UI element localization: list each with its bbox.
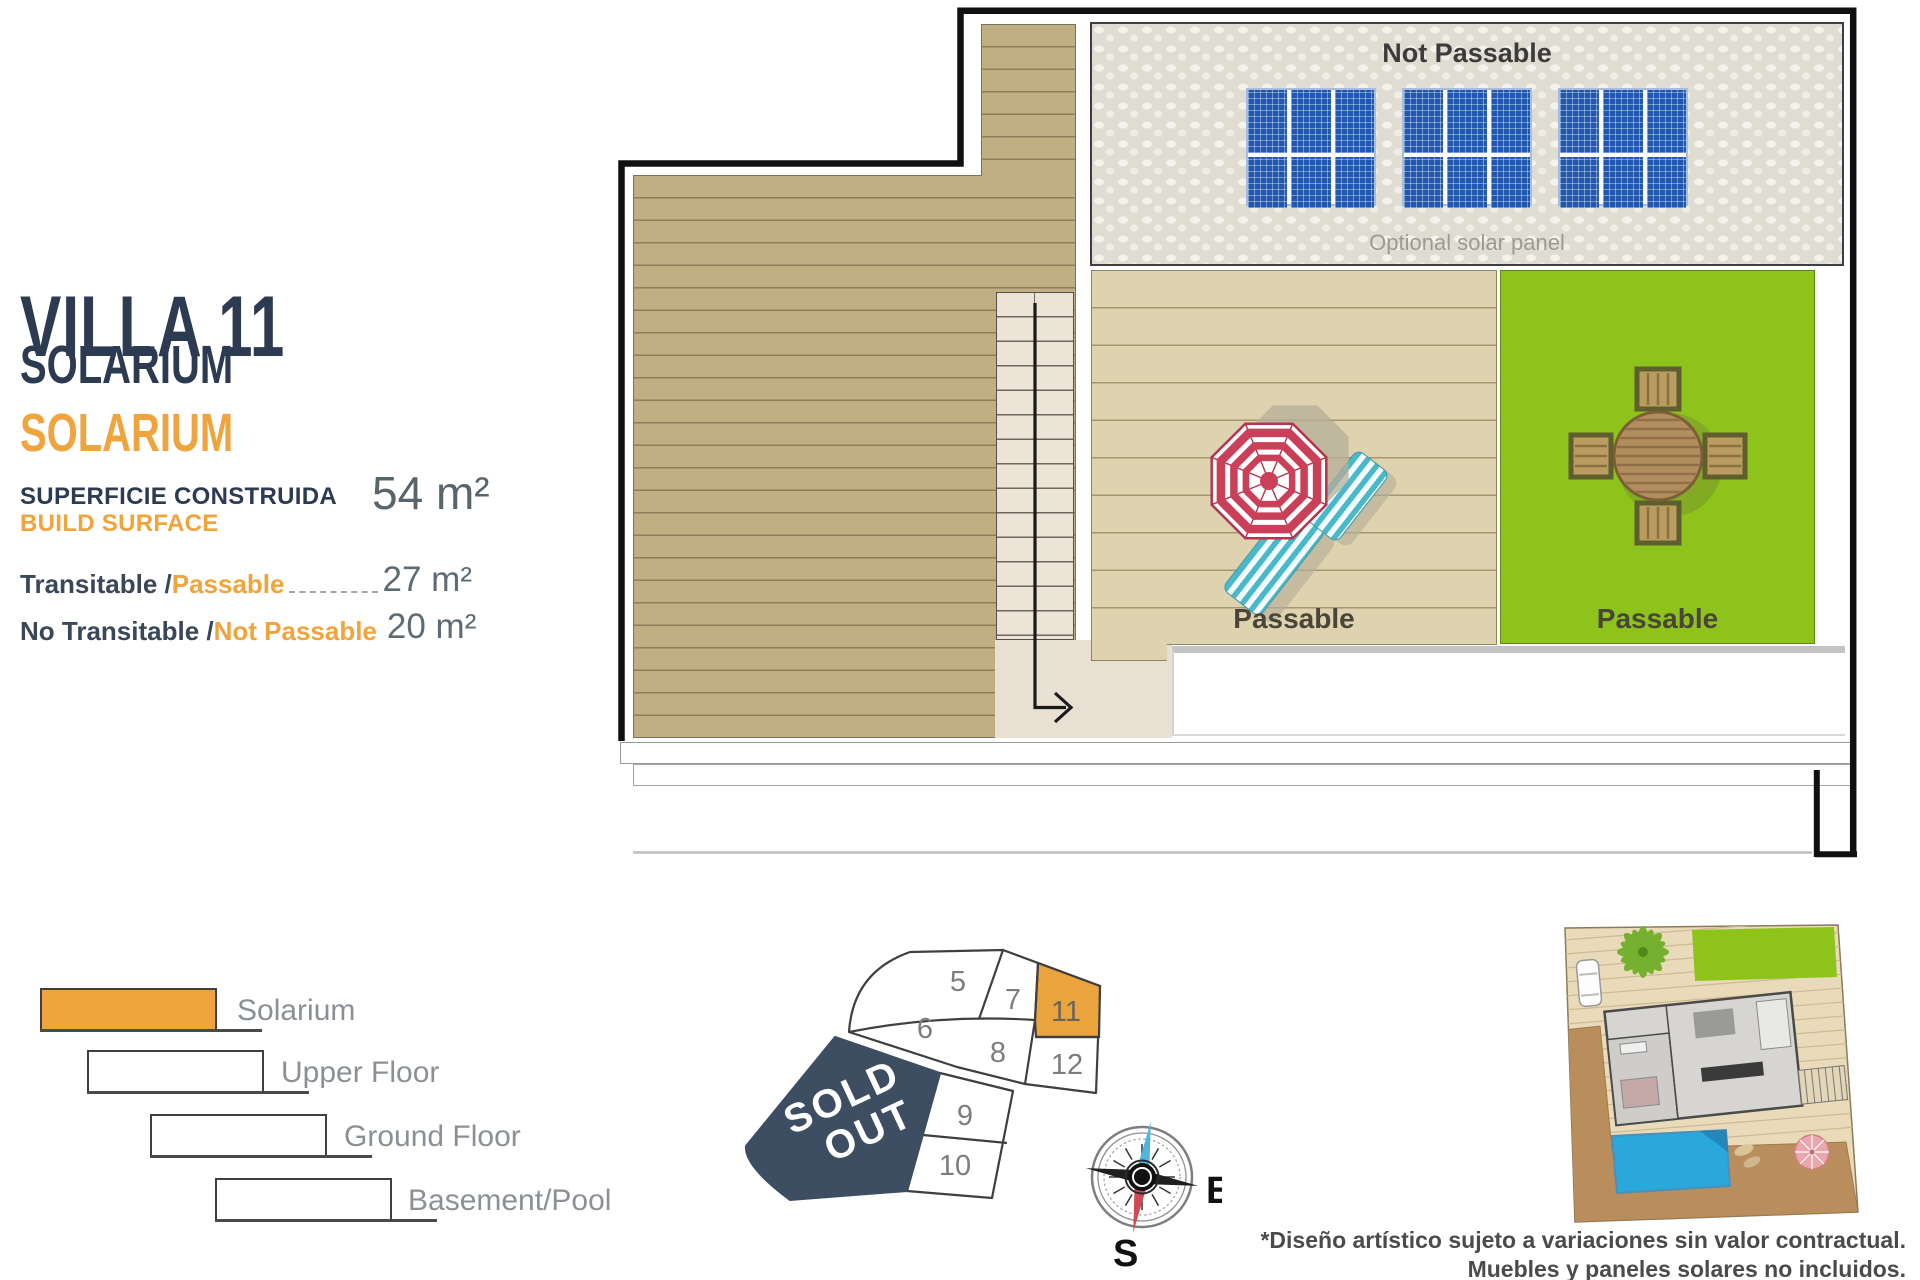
passable-deck-area: Passable — [1091, 270, 1497, 645]
floor-type-es: SOLARIUM — [20, 338, 233, 392]
legend-label-solarium: Solarium — [237, 994, 355, 1028]
legend-underline — [40, 1029, 262, 1032]
legend-bar-ground-floor — [150, 1114, 327, 1157]
plot-8: 8 — [990, 1037, 1006, 1069]
plot-5: 5 — [950, 966, 966, 998]
stair-divider — [1034, 293, 1035, 639]
mini-stairs — [1798, 1066, 1847, 1105]
solar-panel-group — [1402, 88, 1532, 206]
legend-underline — [215, 1219, 437, 1222]
car-icon — [1576, 959, 1602, 1007]
compass-rose-icon: E S — [1072, 1112, 1222, 1272]
disclaimer-line-2: Muebles y paneles solares no incluidos. — [1260, 1255, 1906, 1280]
mini-house — [1604, 992, 1802, 1125]
legend-underline — [87, 1091, 309, 1094]
roof-edge-band — [620, 742, 1853, 764]
lower-floor-cutout — [1172, 646, 1845, 736]
compass-south-label: S — [1113, 1233, 1138, 1272]
solar-panel-group — [1558, 88, 1688, 206]
legend-bar-solarium — [40, 988, 217, 1031]
built-surface-value: 54 m² — [372, 466, 490, 520]
row-value: 27 m² — [383, 560, 472, 600]
mini-lawn — [1692, 927, 1837, 981]
surface-row-not-passable: No Transitable / Not Passable 20 m² — [20, 607, 472, 647]
garden-table-icon — [1563, 361, 1753, 551]
solar-panels — [1246, 88, 1688, 206]
floor-type-en: SOLARIUM — [20, 406, 233, 460]
passable-lawn-area: Passable — [1500, 270, 1815, 644]
mini-umbrella — [1795, 1135, 1829, 1169]
legend-label-basement-pool: Basement/Pool — [408, 1184, 611, 1218]
solar-caption: Optional solar panel — [1092, 230, 1842, 256]
legend-bar-basement-pool — [215, 1178, 392, 1221]
plot-6: 6 — [917, 1013, 933, 1045]
site-map: 5 7 11 6 8 12 9 10 SOLD OUT — [728, 933, 1128, 1223]
disclaimer: *Diseño artístico sujeto a variaciones s… — [1260, 1226, 1906, 1280]
deck-notch — [1091, 644, 1167, 661]
brochure-page: VILLA 11 SOLARIUM SOLARIUM SUPERFICIE CO… — [0, 0, 1920, 1280]
legend-bar-upper-floor — [87, 1050, 264, 1093]
row-label-es: Transitable / — [20, 569, 172, 600]
built-surface-label-es: SUPERFICIE CONSTRUIDA — [20, 483, 337, 511]
passable-lawn-label: Passable — [1501, 603, 1814, 635]
row-label-es: No Transitable / — [20, 616, 214, 647]
plot-12: 12 — [1051, 1049, 1083, 1081]
plot-7: 7 — [1005, 984, 1021, 1016]
solar-panel-group — [1246, 88, 1376, 206]
plot-11: 11 — [1051, 996, 1081, 1028]
villa-top-view — [1540, 878, 1920, 1228]
disclaimer-line-1: *Diseño artístico sujeto a variaciones s… — [1260, 1226, 1906, 1255]
dotted-leader — [289, 590, 377, 593]
row-label-en: Passable — [172, 569, 285, 600]
legend-label-upper-floor: Upper Floor — [281, 1056, 439, 1090]
surface-row-passable: Transitable / Passable 27 m² — [20, 560, 472, 600]
built-surface-label-en: BUILD SURFACE — [20, 510, 219, 538]
not-passable-label: Not Passable — [1092, 38, 1842, 69]
staircase — [996, 292, 1074, 640]
plot-9: 9 — [957, 1100, 973, 1132]
passable-deck-label: Passable — [1092, 603, 1496, 635]
legend-underline — [150, 1155, 372, 1158]
surface-table: Transitable / Passable 27 m² No Transita… — [20, 560, 472, 647]
palm-tree-icon — [1617, 926, 1669, 978]
row-value: 20 m² — [387, 607, 475, 647]
parasol-icon — [1174, 396, 1364, 566]
roof-gravel-area: Not Passable Optional solar panel — [1090, 22, 1844, 266]
row-label-en: Not Passable — [214, 616, 377, 647]
compass-east-label: E — [1206, 1170, 1222, 1212]
wood-deck-strip — [981, 24, 1076, 176]
legend-label-ground-floor: Ground Floor — [344, 1120, 521, 1154]
roof-edge-band — [633, 764, 1853, 786]
plot-10: 10 — [939, 1150, 971, 1182]
